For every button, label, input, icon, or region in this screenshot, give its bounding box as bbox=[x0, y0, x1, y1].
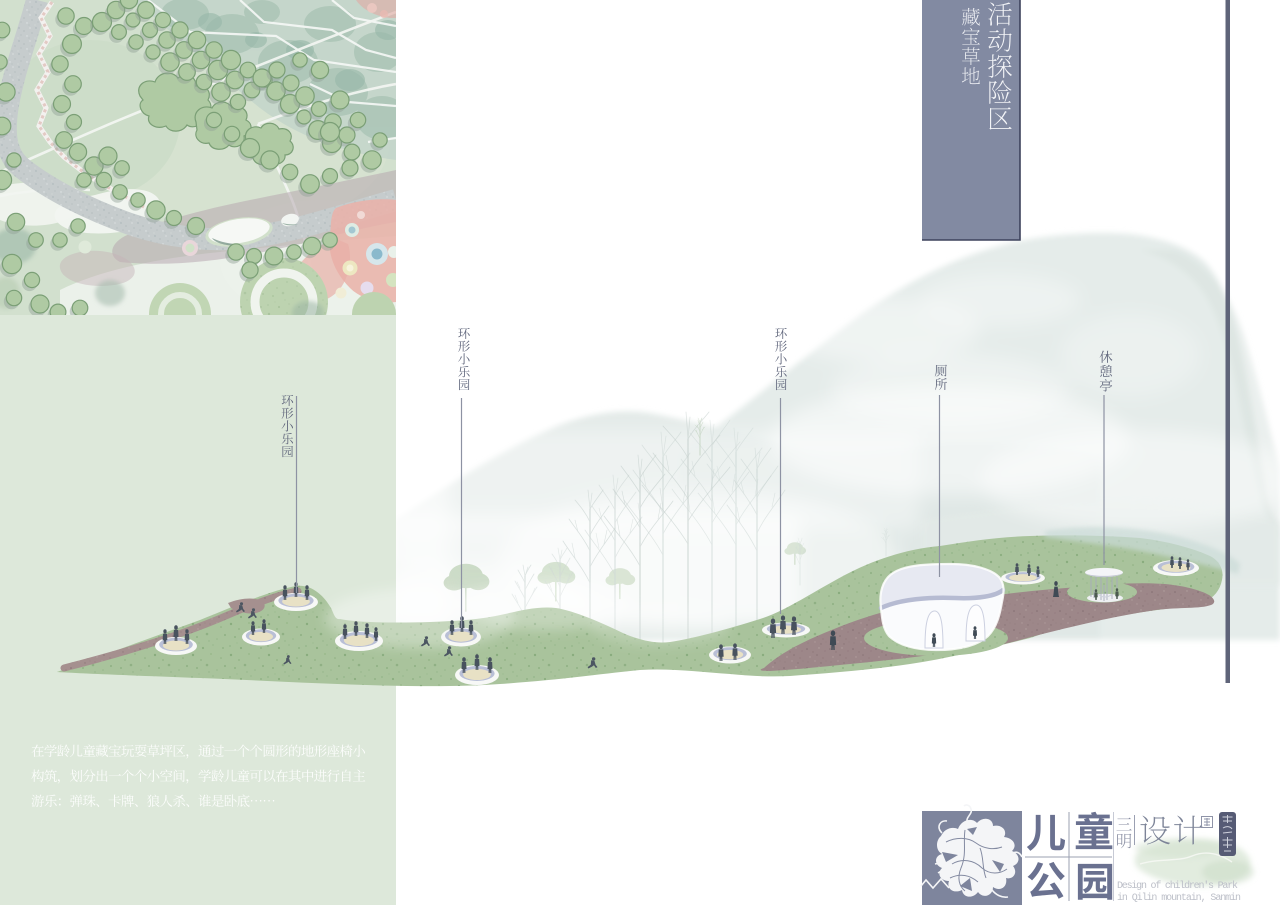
svg-text:Design of children's Park: Design of children's Park bbox=[1117, 880, 1238, 892]
svg-text:in Qilin mountain, Sanmin: in Qilin mountain, Sanmin bbox=[1117, 892, 1241, 904]
